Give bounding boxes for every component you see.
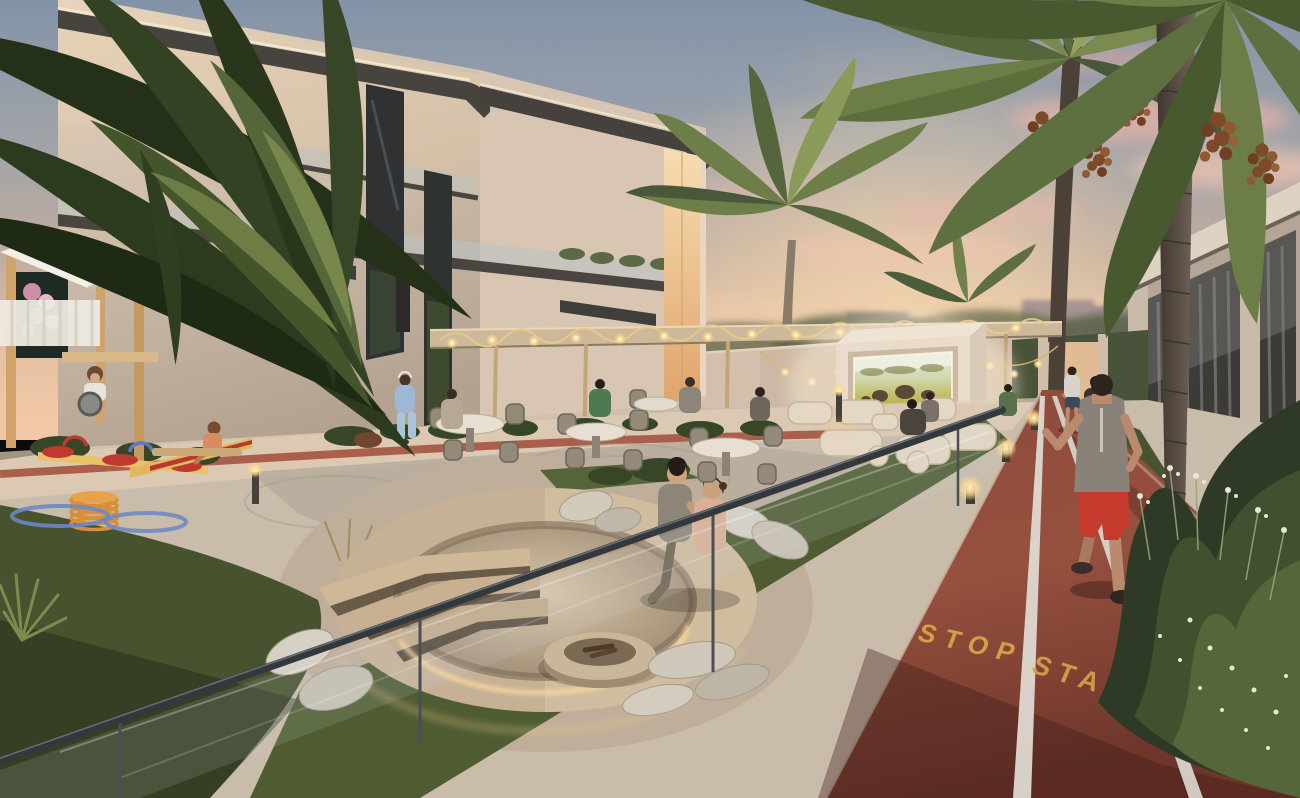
play-steering-wheel bbox=[79, 393, 101, 415]
courtyard-scene: STOP START bbox=[0, 0, 1300, 798]
fire-pit-table bbox=[544, 632, 656, 688]
runner-head bbox=[1091, 374, 1113, 396]
bench bbox=[152, 448, 242, 456]
playhouse-post bbox=[6, 252, 16, 448]
red-shrub bbox=[354, 432, 382, 448]
architectural-rendering: STOP START bbox=[0, 0, 1300, 798]
running-shoe bbox=[1071, 562, 1093, 574]
playhouse-railing bbox=[0, 300, 100, 346]
elephant-silhouette bbox=[895, 385, 915, 399]
red-shorts bbox=[1078, 492, 1130, 540]
